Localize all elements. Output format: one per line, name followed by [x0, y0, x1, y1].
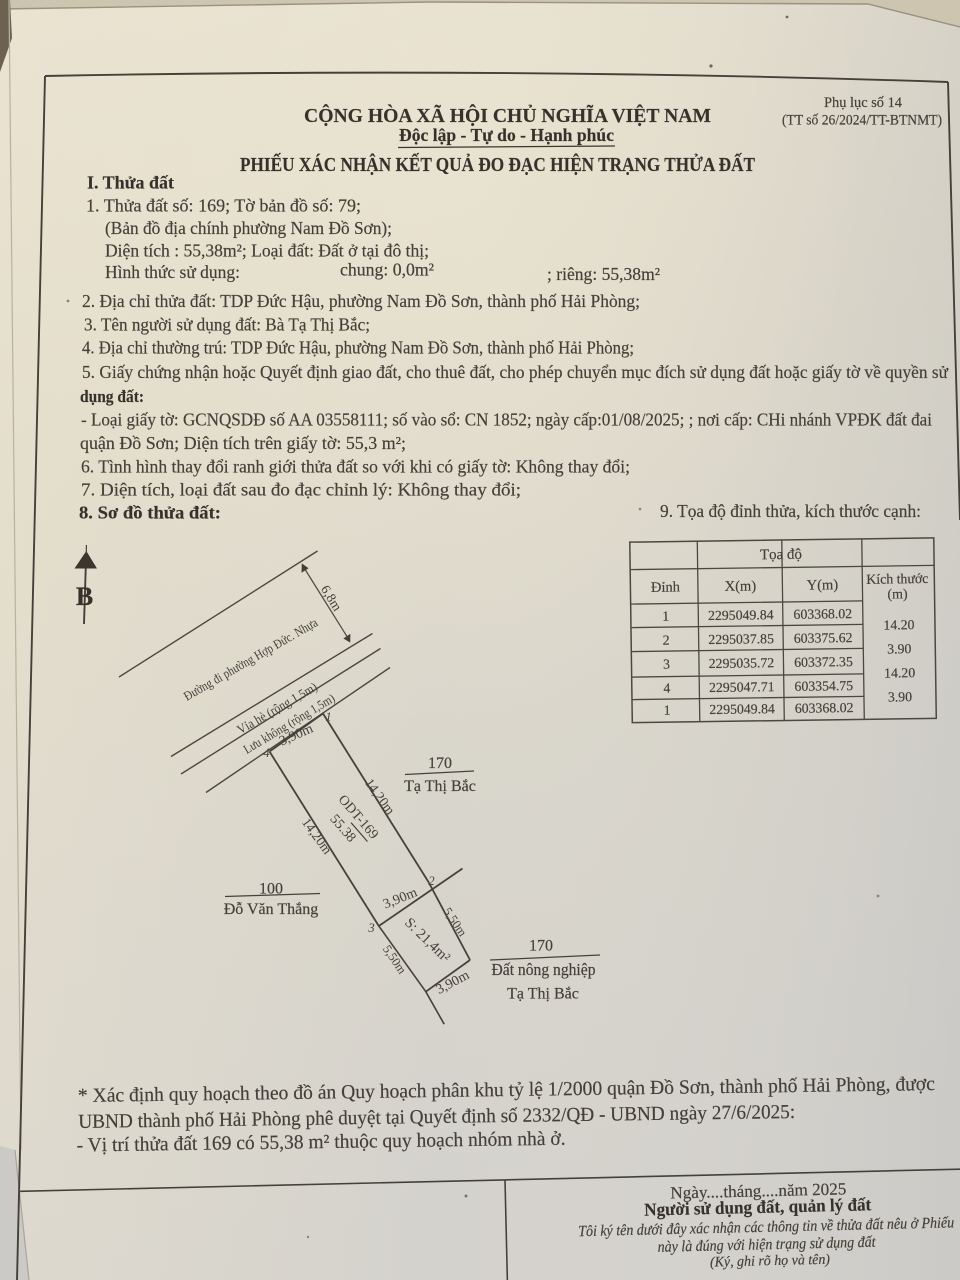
svg-text:Tạ Thị Bắc: Tạ Thị Bắc	[507, 986, 579, 1003]
svg-text:4. Địa chỉ thường trú: TDP Đức: 4. Địa chỉ thường trú: TDP Đức Hậu, phườ…	[82, 338, 634, 358]
svg-text:603368.02: 603368.02	[793, 606, 852, 622]
svg-text:2295037.85: 2295037.85	[708, 631, 774, 647]
svg-text:14.20: 14.20	[884, 665, 915, 680]
svg-text:Hình thức sử dụng:: Hình thức sử dụng:	[105, 262, 240, 282]
svg-text:3.90: 3.90	[888, 689, 912, 704]
svg-text:X(m): X(m)	[725, 578, 757, 594]
svg-text:B: B	[76, 582, 93, 611]
svg-text:4: 4	[663, 681, 670, 696]
svg-text:1: 1	[325, 710, 331, 724]
svg-text:1: 1	[664, 703, 671, 718]
svg-text:1. Thửa đất số: 169; Tờ bản: 1. Thửa đất số: 169; Tờ bản đồ số: 79;	[86, 196, 361, 216]
svg-text:603368.02: 603368.02	[795, 700, 854, 716]
svg-text:Đất nông nghiệp: Đất nông nghiệp	[492, 960, 596, 979]
svg-text:6. Tình hình thay đổi ranh giớ: 6. Tình hình thay đổi ranh giới thửa đất…	[81, 457, 630, 477]
svg-text:2295047.71: 2295047.71	[709, 679, 775, 695]
svg-text:2: 2	[663, 633, 670, 648]
svg-text:3.90: 3.90	[887, 641, 911, 656]
svg-text:8. Sơ đồ thửa đất:: 8. Sơ đồ thửa đất:	[79, 503, 221, 523]
svg-text:Tạ Thị Bắc: Tạ Thị Bắc	[404, 778, 476, 795]
svg-text:(m): (m)	[887, 587, 908, 602]
svg-text:603375.62: 603375.62	[794, 630, 853, 646]
svg-text:7. Diện tích, loại đất sau đo: 7. Diện tích, loại đất sau đo đạc chỉnh …	[81, 480, 521, 500]
svg-text:9. Tọa độ đỉnh thửa, kích thướ: 9. Tọa độ đỉnh thửa, kích thước cạnh:	[660, 501, 921, 521]
svg-text:3. Tên người sử dụng đất: Bà T: 3. Tên người sử dụng đất: Bà Tạ Thị Bắc;	[84, 315, 370, 335]
svg-text:603354.75: 603354.75	[794, 678, 853, 694]
svg-text:(Bản đồ địa chính phường Nam Đ: (Bản đồ địa chính phường Nam Đồ Sơn);	[105, 218, 392, 239]
svg-text:dụng đất:: dụng đất:	[80, 387, 144, 406]
svg-text:Kích thước: Kích thước	[866, 572, 928, 588]
svg-text:2295049.84: 2295049.84	[708, 607, 774, 623]
svg-text:5. Giấy chứng nhận hoặc Quyết: 5. Giấy chứng nhận hoặc Quyết định giao …	[82, 362, 949, 382]
svg-text:Diện tích : 55,38m²; Loại đấ: Diện tích : 55,38m²; Loại đất: Đất ở tại…	[105, 241, 429, 261]
svg-text:; riêng: 55,38m²: ; riêng: 55,38m²	[547, 264, 660, 284]
svg-text:(Ký, ghi rõ họ và tên): (Ký, ghi rõ họ và tên)	[710, 1252, 831, 1271]
svg-text:quận Đồ Sơn; Diện tích trên gi: quận Đồ Sơn; Diện tích trên giấy tờ: 55,…	[80, 433, 406, 453]
svg-text:170: 170	[428, 755, 452, 772]
svg-text:2. Địa chỉ thửa đất: TDP Đức H: 2. Địa chỉ thửa đất: TDP Đức Hậu, phường…	[82, 291, 640, 311]
svg-text:170: 170	[529, 938, 553, 955]
svg-text:Y(m): Y(m)	[807, 577, 839, 593]
svg-text:I. Thửa đất: I. Thửa đất	[87, 173, 174, 193]
svg-text:chung: 0,0m²: chung: 0,0m²	[340, 260, 434, 280]
svg-text:2295049.84: 2295049.84	[709, 701, 775, 717]
svg-text:3: 3	[663, 657, 670, 672]
svg-text:PHIẾU XÁC NHẬN KẾT QUẢ ĐO ĐẠC: PHIẾU XÁC NHẬN KẾT QUẢ ĐO ĐẠC HIỆN TRẠNG…	[240, 152, 756, 176]
svg-text:Đỉnh: Đỉnh	[651, 579, 681, 595]
svg-text:3: 3	[367, 921, 374, 935]
svg-text:2295035.72: 2295035.72	[709, 655, 775, 671]
svg-text:Tọa độ: Tọa độ	[760, 547, 802, 564]
svg-text:(TT số 26/2024/TT-BTNMT): (TT số 26/2024/TT-BTNMT)	[782, 113, 942, 129]
svg-text:CỘNG HÒA XÃ HỘI CHỦ NGHĨA VIỆT: CỘNG HÒA XÃ HỘI CHỦ NGHĨA VIỆT NAM	[304, 103, 711, 127]
svg-text:- Loại giấy tờ: GCNQSDĐ số AA: - Loại giấy tờ: GCNQSDĐ số AA 03558111; …	[81, 410, 932, 430]
svg-text:4: 4	[263, 746, 269, 760]
svg-text:14.20: 14.20	[883, 617, 914, 632]
svg-text:603372.35: 603372.35	[794, 654, 853, 670]
svg-text:Đỗ Văn Thắng: Đỗ Văn Thắng	[224, 901, 319, 918]
svg-text:Phụ lục số 14: Phụ lục số 14	[824, 95, 902, 111]
svg-text:Độc lập - Tự do - Hạnh phúc: Độc lập - Tự do - Hạnh phúc	[399, 125, 614, 145]
svg-text:1: 1	[662, 609, 669, 624]
